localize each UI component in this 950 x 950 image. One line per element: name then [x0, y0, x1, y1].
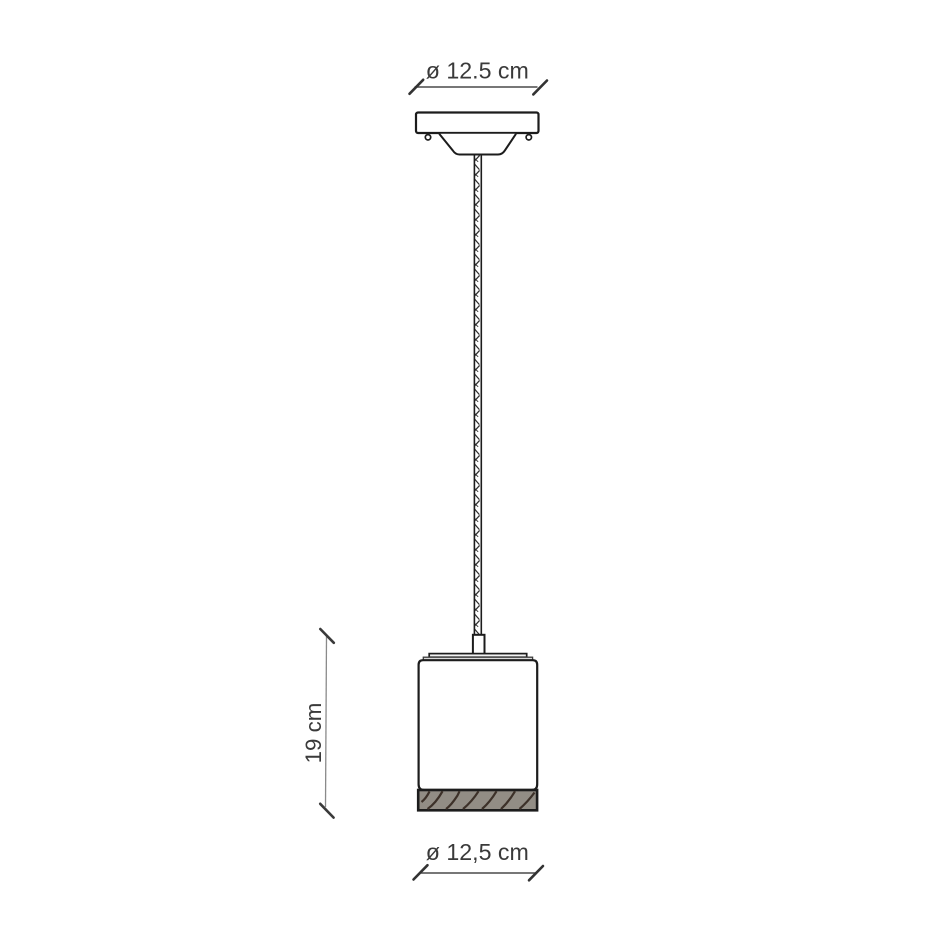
svg-text:ø 12,5 cm: ø 12,5 cm: [426, 839, 529, 865]
svg-text:19 cm: 19 cm: [301, 703, 326, 764]
svg-text:ø 12.5 cm: ø 12.5 cm: [426, 57, 529, 83]
